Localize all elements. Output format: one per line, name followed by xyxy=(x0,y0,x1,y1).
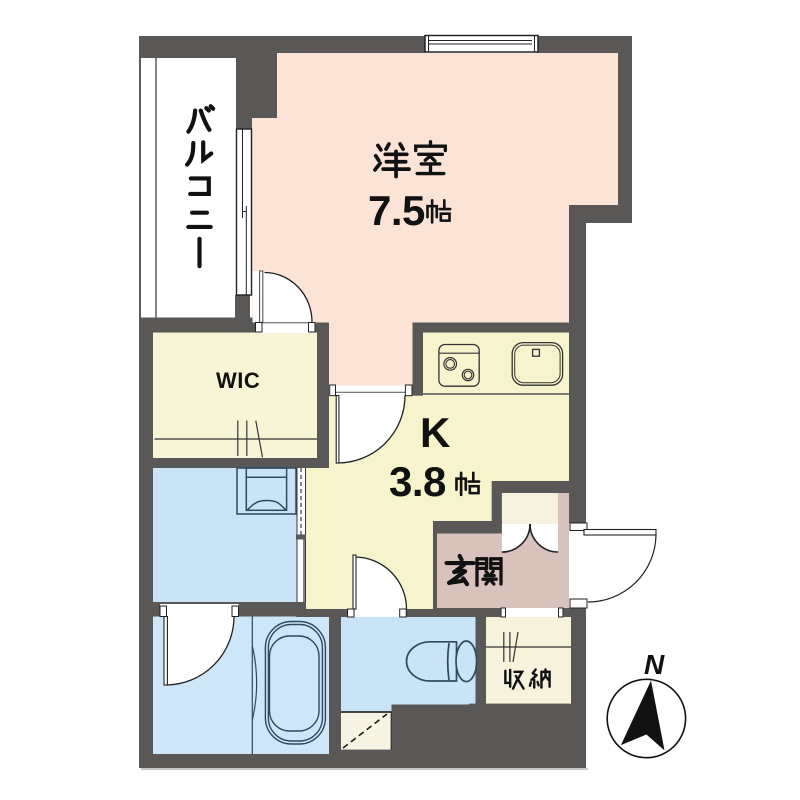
svg-text:WIC: WIC xyxy=(216,368,260,393)
svg-text:7.5: 7.5 xyxy=(368,187,425,234)
svg-text:3.8: 3.8 xyxy=(389,458,446,505)
svg-text:K: K xyxy=(420,409,450,456)
svg-text:N: N xyxy=(644,649,665,680)
